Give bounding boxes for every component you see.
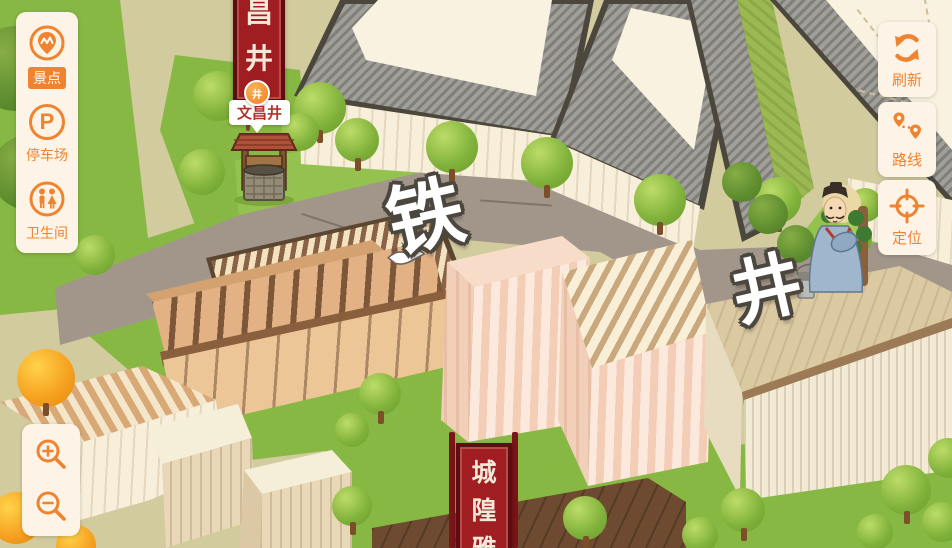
green-tree: [634, 174, 686, 226]
banner-char: 隍: [471, 499, 496, 524]
route-icon: [889, 110, 925, 146]
banner-char: 雅: [471, 537, 496, 548]
route-button[interactable]: 路线: [878, 102, 936, 177]
green-tree: [682, 517, 718, 548]
banner-post: [449, 432, 455, 548]
green-tree: [521, 137, 573, 189]
green-tree: [563, 496, 607, 540]
poi-marker-icon[interactable]: 井: [244, 80, 270, 106]
banner-post: [512, 432, 518, 548]
road-crack: [301, 213, 359, 233]
green-tree: [721, 488, 765, 532]
locate-icon: [889, 188, 925, 224]
sidebar-item-scenic[interactable]: 景点: [28, 24, 66, 89]
map-canvas[interactable]: 文 昌 井 城 隍 雅 铁 井 井 文昌井: [0, 0, 952, 548]
green-tree: [75, 235, 115, 275]
sidebar-item-label: 停车场: [26, 145, 68, 165]
orange-tree: [17, 349, 75, 407]
sidebar-item-label: 卫生间: [26, 223, 68, 243]
route-label: 路线: [892, 149, 922, 170]
green-tree: [928, 438, 952, 478]
green-tree: [335, 413, 369, 447]
banner-chenghuang: 城 隍 雅: [456, 443, 512, 548]
restroom-icon: [28, 180, 66, 218]
npc-scholar-character: [792, 176, 878, 302]
sidebar-item-restroom[interactable]: 卫生间: [26, 180, 68, 243]
green-tree: [359, 373, 401, 415]
parking-glyph: P: [40, 109, 55, 135]
green-tree: [335, 118, 379, 162]
banner-char: 井: [245, 46, 273, 74]
parking-icon: P: [29, 104, 65, 140]
banner-char: 昌: [245, 0, 273, 28]
street-char-tie: 铁: [380, 172, 471, 263]
green-tree: [426, 121, 478, 173]
refresh-label: 刷新: [892, 69, 922, 90]
green-tree: [179, 149, 225, 195]
scenic-pin-icon: [28, 24, 66, 62]
green-tree: [881, 465, 931, 515]
green-tree: [857, 514, 893, 548]
road-crack: [480, 199, 552, 206]
zoom-in-icon[interactable]: [31, 434, 71, 474]
sidebar-item-parking[interactable]: P 停车场: [26, 104, 68, 165]
zoom-out-icon[interactable]: [31, 486, 71, 526]
sidebar-item-label: 景点: [28, 67, 66, 89]
dark-tree: [748, 194, 788, 234]
map-app: 文 昌 井 城 隍 雅 铁 井 井 文昌井: [0, 0, 952, 548]
well-illustration: [224, 124, 304, 206]
road-crack: [651, 257, 703, 286]
green-tree: [332, 486, 372, 526]
refresh-button[interactable]: 刷新: [878, 22, 936, 97]
banner-char: 城: [471, 461, 496, 486]
zoom-panel: [22, 424, 80, 536]
poi-marker-glyph: 井: [252, 86, 262, 101]
refresh-icon: [889, 30, 925, 66]
green-tree: [922, 502, 952, 542]
locate-label: 定位: [892, 227, 922, 248]
left-sidebar: 景点 P 停车场 卫生间: [16, 12, 78, 253]
locate-button[interactable]: 定位: [878, 180, 936, 255]
dark-tree: [722, 162, 762, 202]
poi-pointer: [250, 124, 264, 133]
